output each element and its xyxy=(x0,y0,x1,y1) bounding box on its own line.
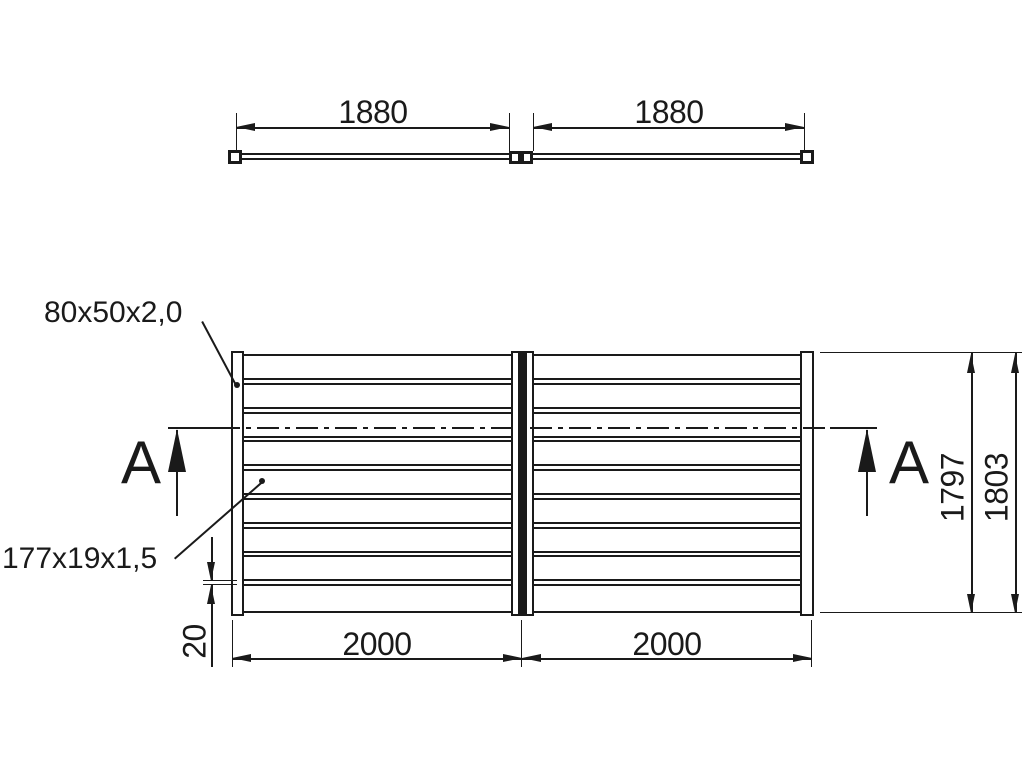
top-view-end-cap-right xyxy=(800,150,814,164)
dim-label-top-left: 1880 xyxy=(300,94,446,131)
slat-profile-label: 177x19x1,5 xyxy=(2,542,157,576)
extension-line xyxy=(236,113,237,151)
dim-label-width-right: 2000 xyxy=(594,626,740,663)
dim-arrow-icon xyxy=(967,354,975,373)
extension-line xyxy=(820,352,1022,353)
extension-line xyxy=(509,113,510,151)
leader-dot xyxy=(259,478,265,484)
dim-label-top-right: 1880 xyxy=(596,94,742,131)
dim-arrow-icon xyxy=(785,123,804,131)
dim-arrow-icon xyxy=(793,654,812,662)
dim-label-width-left: 2000 xyxy=(304,626,450,663)
dim-arrow-icon xyxy=(490,123,509,131)
dim-label-gap: 20 xyxy=(177,620,214,664)
dim-line-gap xyxy=(211,585,213,667)
dim-arrow-icon xyxy=(967,594,975,613)
section-label-right: A xyxy=(885,434,933,492)
dim-label-height-inner: 1797 xyxy=(935,448,972,528)
dim-arrow-icon xyxy=(1011,354,1019,373)
top-view-center-post-right xyxy=(521,151,533,164)
dim-arrow-icon xyxy=(1011,594,1019,613)
frame-post-right xyxy=(800,351,814,616)
extension-line xyxy=(203,580,237,581)
section-line-dashdot xyxy=(218,427,830,429)
frame-post-left xyxy=(231,351,244,616)
dim-arrow-icon xyxy=(533,123,552,131)
top-view-end-cap-left xyxy=(228,150,242,164)
dim-arrow-icon xyxy=(232,654,251,662)
section-arrow-left-icon xyxy=(168,429,186,472)
section-label-left: A xyxy=(117,434,165,492)
center-post-right xyxy=(525,351,534,616)
dim-arrow-icon xyxy=(522,654,541,662)
center-gap xyxy=(519,351,525,616)
leader-dot xyxy=(234,382,240,388)
dim-label-height-outer: 1803 xyxy=(979,448,1016,528)
dim-arrow-icon xyxy=(207,562,215,581)
extension-line xyxy=(533,113,534,151)
dim-arrow-icon xyxy=(236,123,255,131)
top-view-center-post-left xyxy=(509,151,521,164)
gate-technical-drawing: 1880 1880 A A 80x50x2,0 177x19x1,5 20 xyxy=(0,0,1024,768)
extension-line xyxy=(804,113,805,151)
extension-line xyxy=(820,612,1022,613)
dim-arrow-icon xyxy=(503,654,522,662)
frame-profile-label: 80x50x2,0 xyxy=(44,296,182,330)
section-arrow-right-icon xyxy=(858,429,876,472)
